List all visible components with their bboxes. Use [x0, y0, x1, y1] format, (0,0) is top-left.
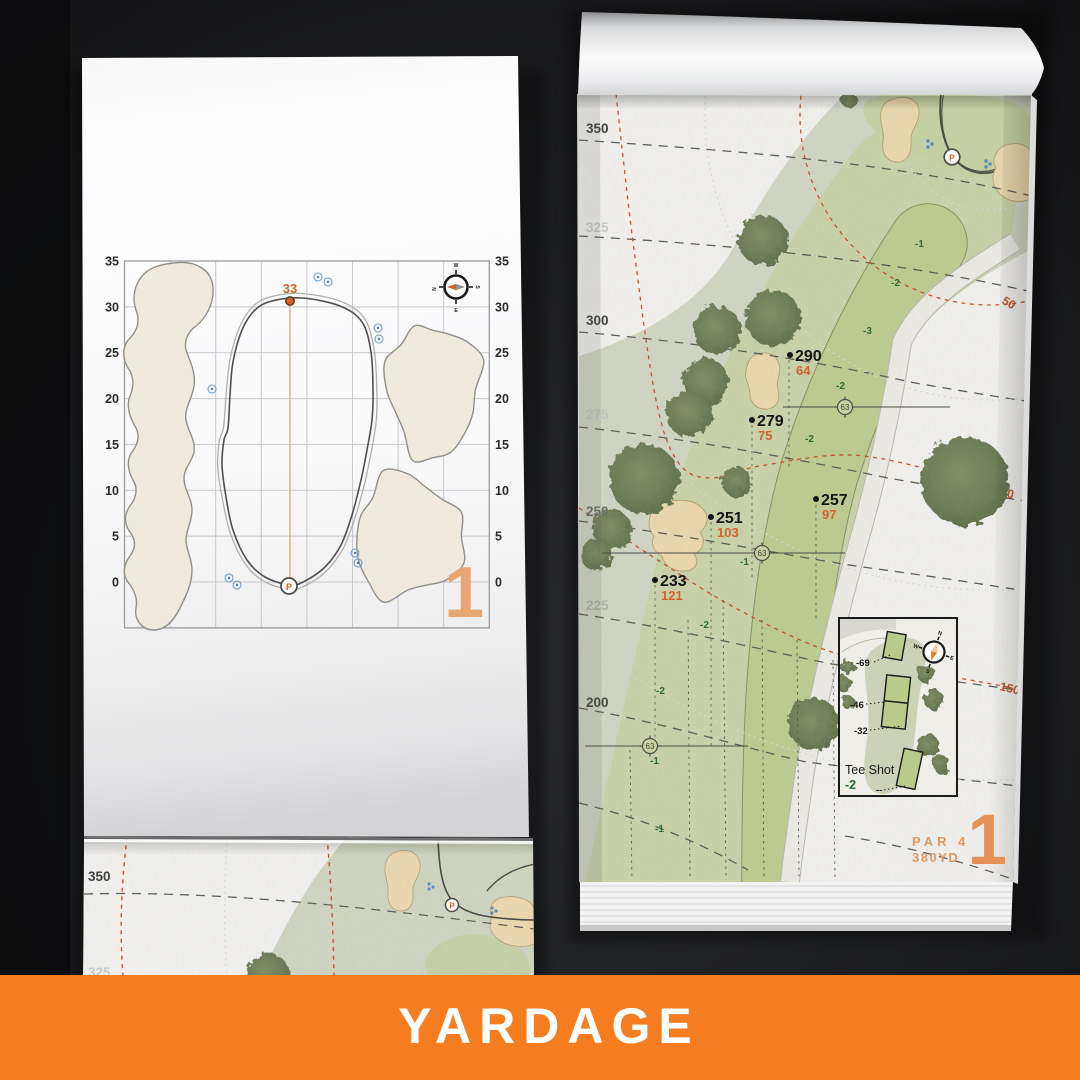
svg-text:33: 33	[283, 281, 297, 296]
svg-text:0: 0	[112, 576, 119, 590]
svg-text:20: 20	[495, 392, 509, 406]
svg-text:30: 30	[105, 300, 119, 314]
svg-text:10: 10	[105, 484, 119, 498]
svg-text:YARDAGE: YARDAGE	[398, 998, 699, 1054]
svg-text:1: 1	[968, 801, 1008, 880]
svg-text:1: 1	[444, 553, 484, 633]
svg-text:25: 25	[105, 346, 119, 360]
svg-text:10: 10	[495, 484, 509, 498]
svg-text:W: W	[454, 263, 459, 269]
svg-text:380YD: 380YD	[912, 850, 959, 865]
svg-text:30: 30	[495, 300, 509, 314]
svg-text:20: 20	[105, 392, 119, 406]
svg-text:-69: -69	[856, 658, 870, 669]
svg-text:P: P	[286, 582, 292, 592]
svg-text:PAR 4: PAR 4	[912, 834, 969, 849]
svg-text:--: --	[876, 785, 882, 796]
svg-text:-46: -46	[850, 700, 864, 711]
svg-text:15: 15	[105, 438, 119, 452]
svg-text:N: N	[432, 287, 438, 291]
svg-text:35: 35	[105, 255, 119, 269]
svg-text:35: 35	[495, 255, 509, 269]
svg-text:15: 15	[495, 438, 509, 452]
svg-text:-2: -2	[845, 778, 856, 792]
svg-text:25: 25	[495, 346, 509, 360]
svg-text:0: 0	[495, 576, 502, 590]
svg-text:Tee Shot: Tee Shot	[845, 763, 895, 777]
svg-text:5: 5	[112, 530, 119, 544]
svg-text:5: 5	[495, 530, 502, 544]
svg-text:-32: -32	[854, 726, 868, 737]
